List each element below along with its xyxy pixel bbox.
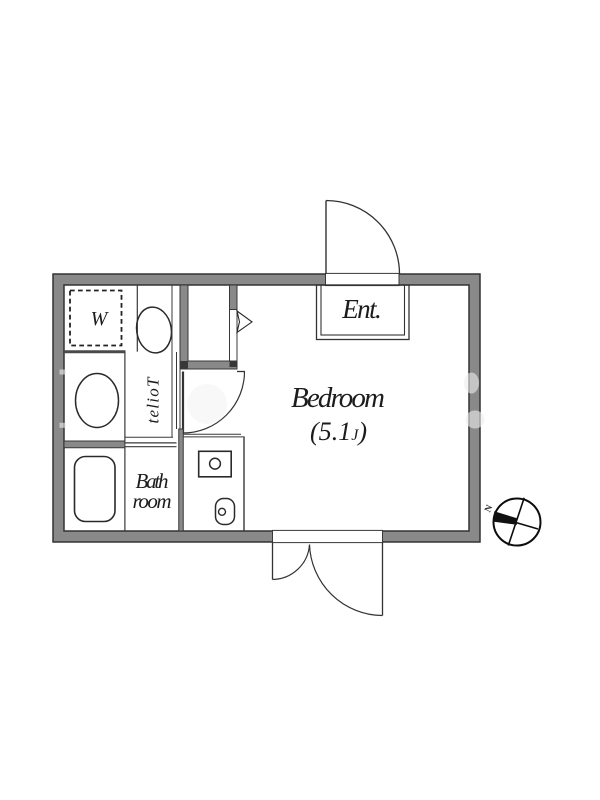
svg-text:N: N [483,504,495,515]
svg-text:Ent.: Ent. [341,294,382,324]
svg-text:room: room [133,489,172,513]
svg-text:telioT: telioT [144,376,163,424]
svg-text:Bedroom: Bedroom [291,382,385,414]
svg-text:(5.1J): (5.1J) [310,417,367,446]
svg-text:W: W [91,308,110,330]
